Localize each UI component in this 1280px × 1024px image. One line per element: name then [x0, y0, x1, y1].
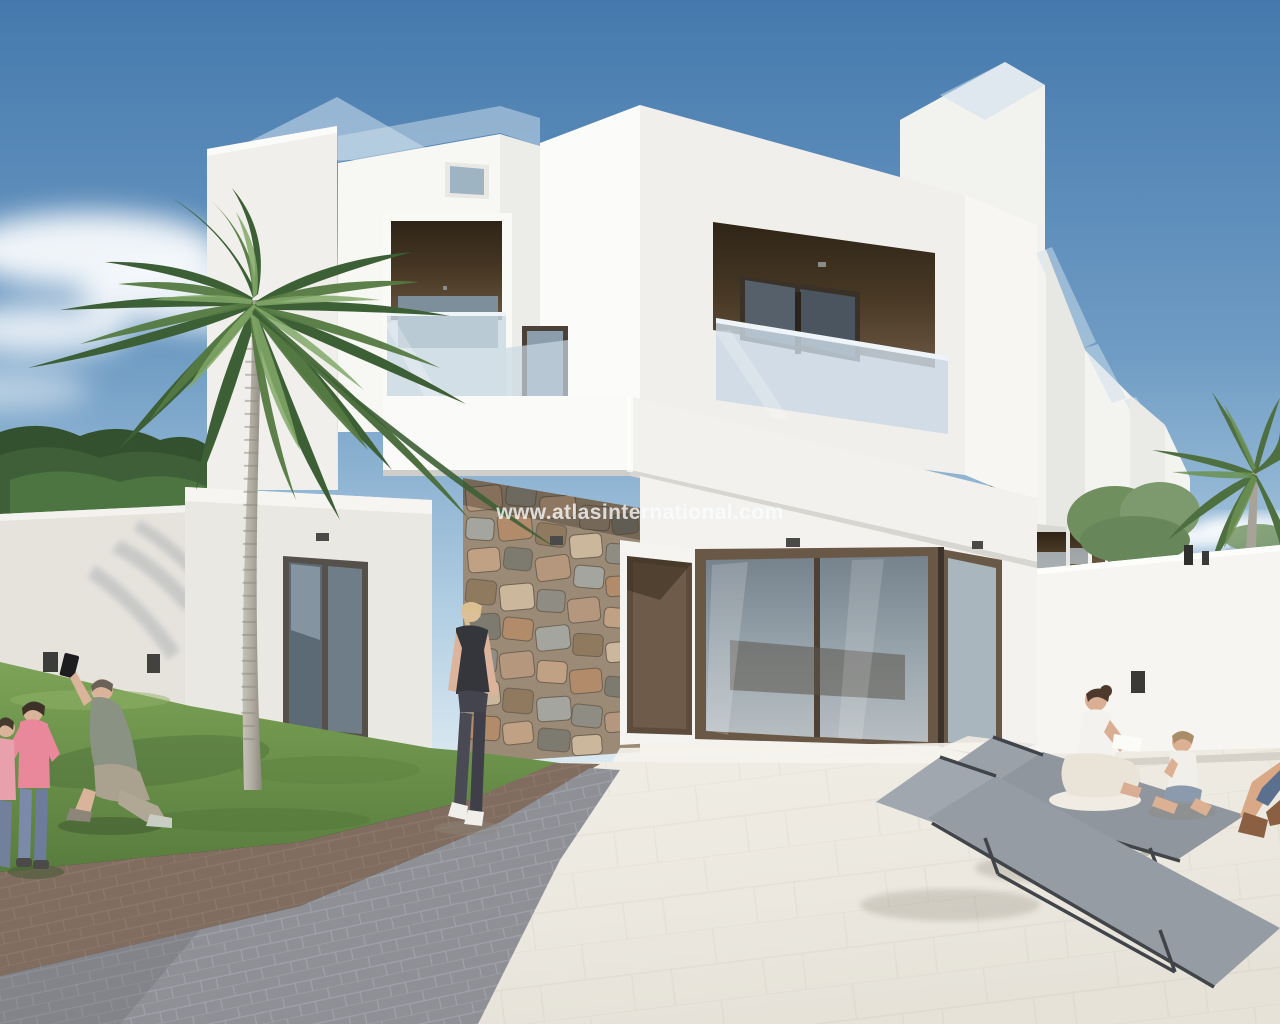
front-door [620, 540, 700, 745]
wall-post-2 [1202, 551, 1209, 565]
utility-box-right [1131, 671, 1145, 693]
stone-feature-wall [463, 478, 640, 764]
utility-box-left-1 [43, 652, 58, 672]
left-wing-window [283, 556, 368, 739]
sliding-glass-doors [695, 547, 1035, 760]
scene-art [0, 0, 1280, 1024]
right-balcony [713, 222, 948, 434]
utility-box-left-2 [147, 654, 160, 673]
roof-access-window [445, 162, 489, 199]
wall-post-1 [1184, 545, 1193, 565]
render-canvas: www.atlasinternational.com [0, 0, 1280, 1024]
left-wing [185, 487, 432, 750]
right-perimeter-wall [1002, 545, 1280, 764]
